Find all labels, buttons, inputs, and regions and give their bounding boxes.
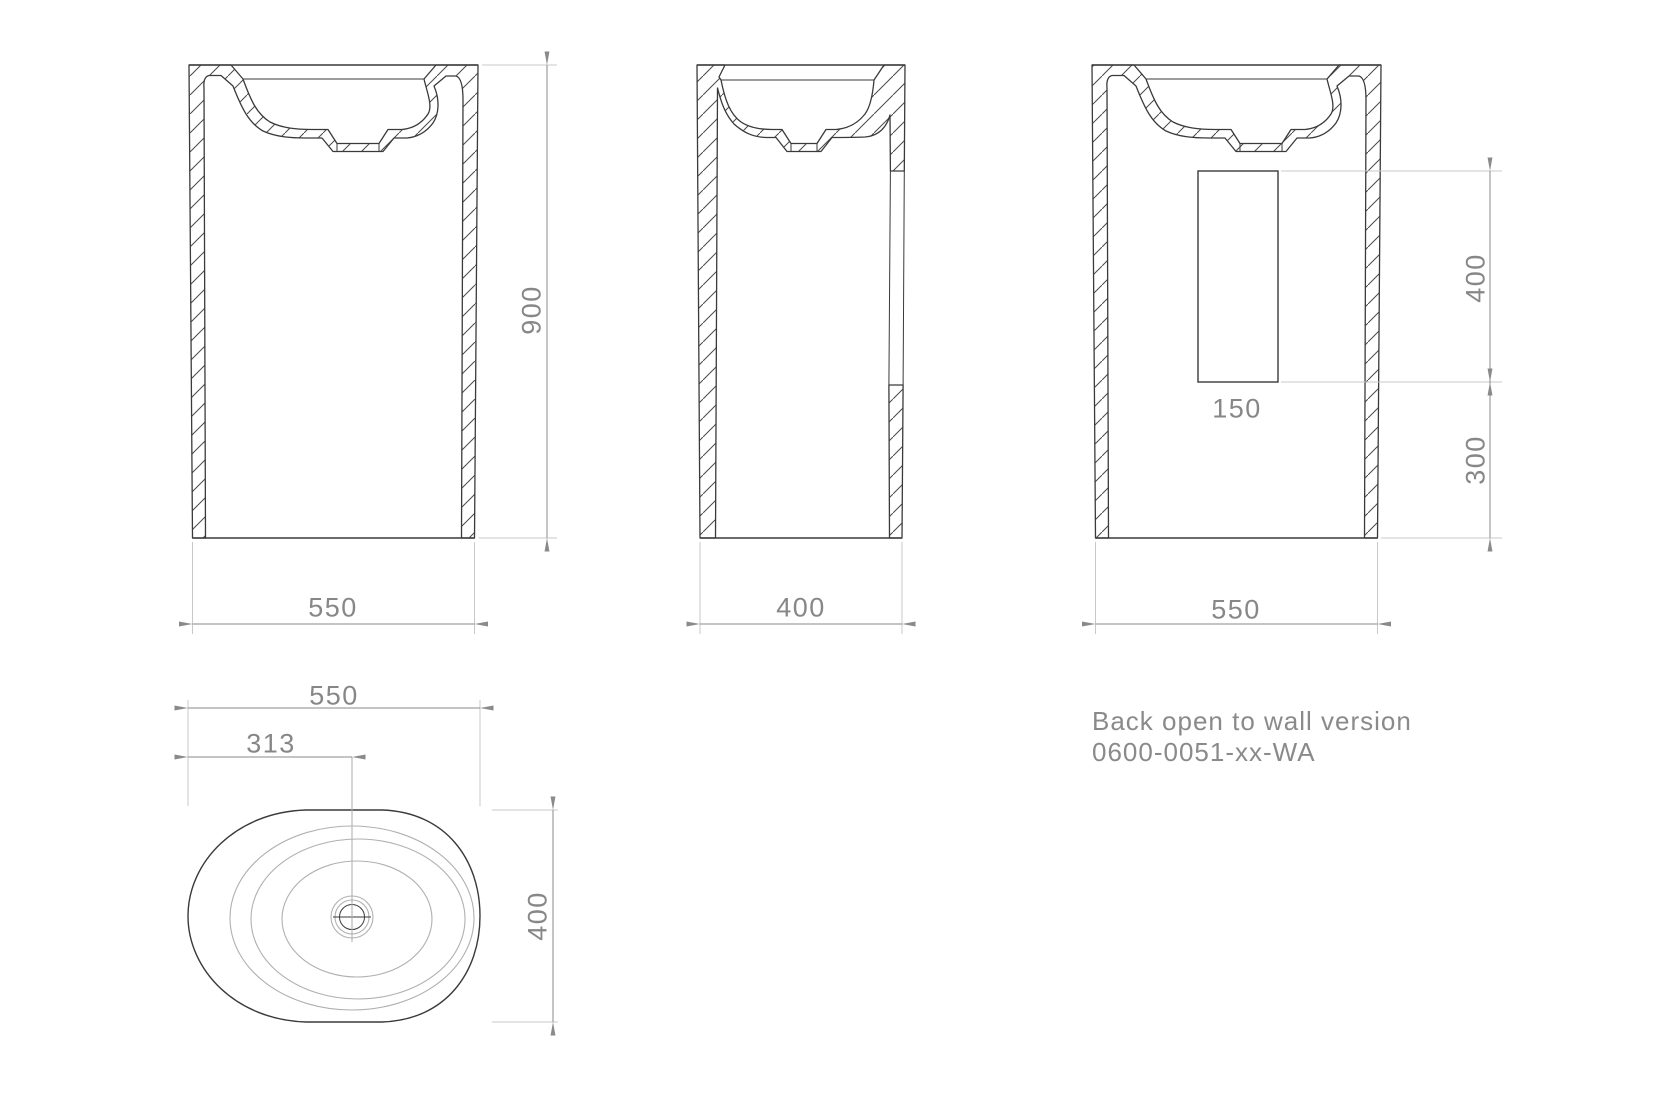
side-opening-inner-edge bbox=[889, 171, 891, 385]
technical-drawing-canvas: 550 900 400 550 150 400 300 550 313 400 … bbox=[0, 0, 1667, 1094]
front-cut-section bbox=[189, 65, 478, 538]
side-cut-section bbox=[697, 65, 905, 538]
version-note-line2: 0600-0051-xx-WA bbox=[1092, 737, 1412, 768]
side-back-wall-lower bbox=[889, 385, 903, 538]
plan-drain-offset-dim-label: 313 bbox=[246, 729, 296, 760]
plan-outer-outline bbox=[188, 810, 480, 1022]
drawing-linework bbox=[0, 0, 1667, 1094]
dimension-lines bbox=[188, 65, 1502, 1022]
front-width-dim-label: 550 bbox=[308, 593, 358, 624]
back-opening-height-dim-label: 400 bbox=[1461, 253, 1492, 303]
side-depth-dim-label: 400 bbox=[776, 593, 826, 624]
plan-depth-dim-label: 400 bbox=[523, 891, 554, 941]
version-note: Back open to wall version 0600-0051-xx-W… bbox=[1092, 706, 1412, 768]
side-view bbox=[697, 65, 905, 538]
plan-view bbox=[188, 757, 480, 1022]
back-wall-opening bbox=[1198, 171, 1278, 382]
front-height-dim-label: 900 bbox=[517, 285, 548, 335]
back-opening-bottom-dim-label: 300 bbox=[1461, 435, 1492, 485]
version-note-line1: Back open to wall version bbox=[1092, 706, 1412, 737]
back-width-dim-label: 550 bbox=[1211, 595, 1261, 626]
back-cut-section bbox=[1092, 65, 1381, 538]
back-opening-width-dim-label: 150 bbox=[1212, 394, 1262, 425]
plan-bowl-top-edge bbox=[251, 839, 465, 999]
front-view bbox=[189, 65, 478, 538]
plan-width-dim-label: 550 bbox=[309, 681, 359, 712]
back-view bbox=[1092, 65, 1381, 538]
plan-bowl-bottom-edge bbox=[282, 861, 432, 977]
side-opening-outer-edge bbox=[903, 171, 904, 385]
